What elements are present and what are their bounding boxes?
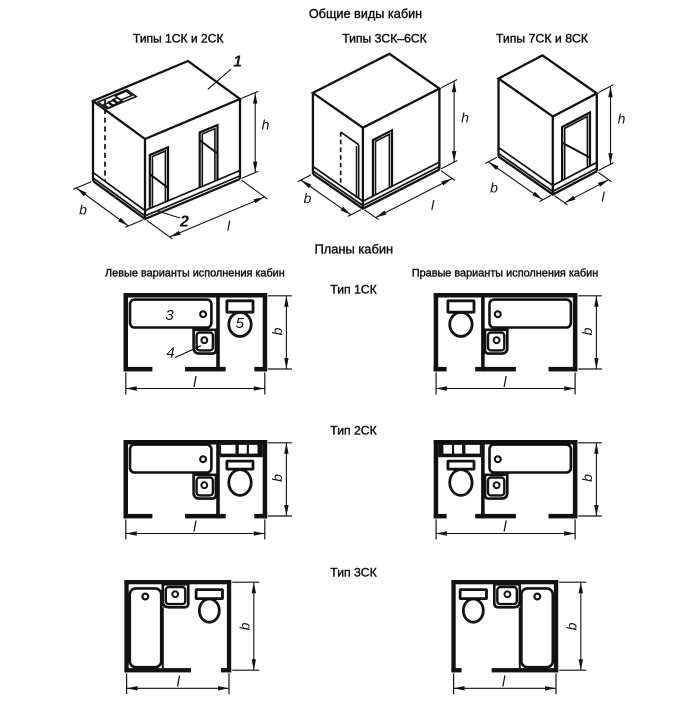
svg-text:Типы 7СК и 8СК: Типы 7СК и 8СК xyxy=(496,32,589,46)
svg-text:2: 2 xyxy=(179,214,189,231)
svg-text:5: 5 xyxy=(236,315,245,332)
svg-text:Тип 3СК: Тип 3СК xyxy=(330,565,377,579)
svg-text:Общие виды кабин: Общие виды кабин xyxy=(309,7,422,21)
svg-text:h: h xyxy=(461,110,469,126)
svg-text:Планы кабин: Планы кабин xyxy=(314,242,393,257)
svg-text:b: b xyxy=(269,327,285,335)
svg-text:b: b xyxy=(564,622,580,630)
svg-text:Левые варианты исполнения каби: Левые варианты исполнения кабин xyxy=(105,268,285,280)
svg-text:b: b xyxy=(579,327,595,335)
svg-text:4: 4 xyxy=(166,345,174,362)
svg-text:Типы 3СК–6СК: Типы 3СК–6СК xyxy=(342,32,427,46)
svg-text:Типы 1СК и 2СК: Типы 1СК и 2СК xyxy=(133,32,224,46)
svg-text:b: b xyxy=(579,474,595,482)
svg-text:3: 3 xyxy=(165,307,174,324)
svg-text:b: b xyxy=(237,622,253,630)
svg-text:l: l xyxy=(601,189,605,205)
svg-text:b: b xyxy=(269,474,285,482)
svg-text:b: b xyxy=(304,190,312,206)
svg-text:b: b xyxy=(490,180,498,196)
svg-text:l: l xyxy=(227,218,231,234)
svg-text:l: l xyxy=(431,197,435,213)
svg-text:b: b xyxy=(79,202,87,218)
svg-text:Тип 1СК: Тип 1СК xyxy=(330,282,377,296)
svg-text:Правые варианты исполнения каб: Правые варианты исполнения кабин xyxy=(412,268,599,280)
svg-text:1: 1 xyxy=(233,54,242,71)
svg-text:h: h xyxy=(618,111,626,127)
svg-text:Тип 2СК: Тип 2СК xyxy=(330,423,377,437)
svg-text:h: h xyxy=(262,117,270,133)
